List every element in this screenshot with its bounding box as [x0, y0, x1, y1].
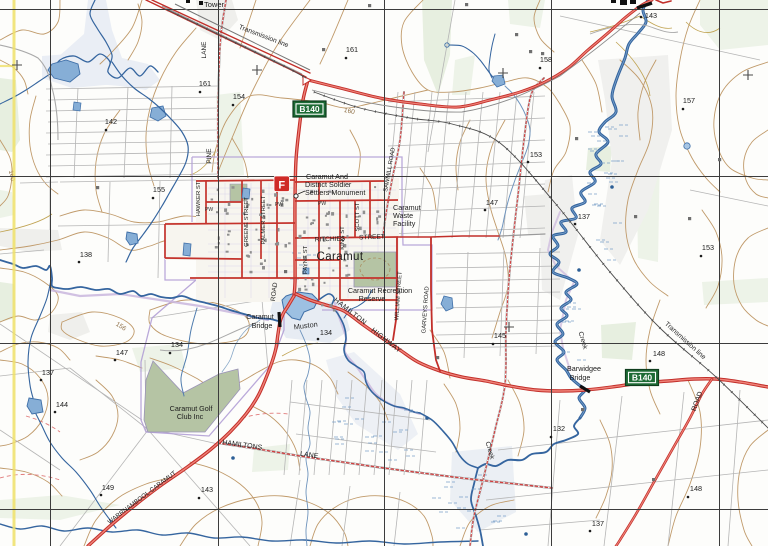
svg-text:137: 137	[42, 368, 54, 377]
svg-text:B140: B140	[299, 104, 320, 114]
svg-text:143: 143	[201, 485, 213, 494]
svg-text:138: 138	[80, 250, 92, 259]
svg-text:147: 147	[116, 348, 128, 357]
svg-text:PINE: PINE	[206, 148, 213, 164]
svg-text:Facility: Facility	[393, 219, 416, 228]
svg-text:PW: PW	[205, 207, 213, 213]
svg-text:Bridge: Bridge	[252, 321, 273, 330]
svg-text:PAYNE ST: PAYNE ST	[303, 245, 309, 274]
svg-text:PW: PW	[318, 201, 326, 207]
svg-text:SCOTT ST: SCOTT ST	[355, 202, 361, 231]
svg-text:134: 134	[320, 328, 332, 337]
svg-text:LANE: LANE	[201, 41, 208, 59]
svg-text:RITCHIES: RITCHIES	[315, 235, 346, 243]
svg-text:Reserve: Reserve	[359, 294, 386, 303]
svg-text:137: 137	[578, 212, 590, 221]
svg-text:HAWKER ST: HAWKER ST	[196, 181, 202, 216]
svg-text:144: 144	[56, 400, 68, 409]
svg-text:Tower: Tower	[204, 0, 225, 9]
svg-text:Caramut: Caramut	[317, 251, 364, 263]
svg-text:PW: PW	[275, 202, 283, 208]
svg-text:142: 142	[105, 117, 117, 126]
svg-text:134: 134	[171, 340, 183, 349]
svg-text:149: 149	[102, 483, 114, 492]
svg-text:Barwidgee: Barwidgee	[567, 364, 601, 373]
svg-text:Settlers Monument: Settlers Monument	[305, 188, 365, 197]
svg-text:154: 154	[233, 92, 245, 101]
svg-text:GREENE STREET: GREENE STREET	[244, 197, 250, 247]
svg-text:153: 153	[530, 150, 542, 159]
svg-text:145: 145	[494, 331, 506, 340]
svg-text:F: F	[278, 180, 285, 192]
svg-text:157: 157	[683, 96, 695, 105]
svg-text:158: 158	[540, 55, 552, 64]
svg-text:Bridge: Bridge	[570, 373, 591, 382]
svg-text:147: 147	[486, 198, 498, 207]
svg-text:STREET: STREET	[359, 234, 385, 242]
svg-text:143: 143	[645, 11, 657, 20]
svg-text:148: 148	[653, 349, 665, 358]
svg-text:161: 161	[346, 45, 358, 54]
svg-text:155: 155	[153, 185, 165, 194]
svg-text:161: 161	[199, 79, 211, 88]
svg-text:PALMER STREET: PALMER STREET	[261, 195, 267, 244]
svg-text:132: 132	[553, 424, 565, 433]
svg-text:153: 153	[702, 243, 714, 252]
svg-text:137: 137	[592, 519, 604, 528]
svg-text:B140: B140	[632, 373, 653, 383]
svg-text:Club Inc: Club Inc	[177, 412, 204, 421]
svg-text:Caramut: Caramut	[246, 312, 274, 321]
svg-text:148: 148	[690, 484, 702, 493]
